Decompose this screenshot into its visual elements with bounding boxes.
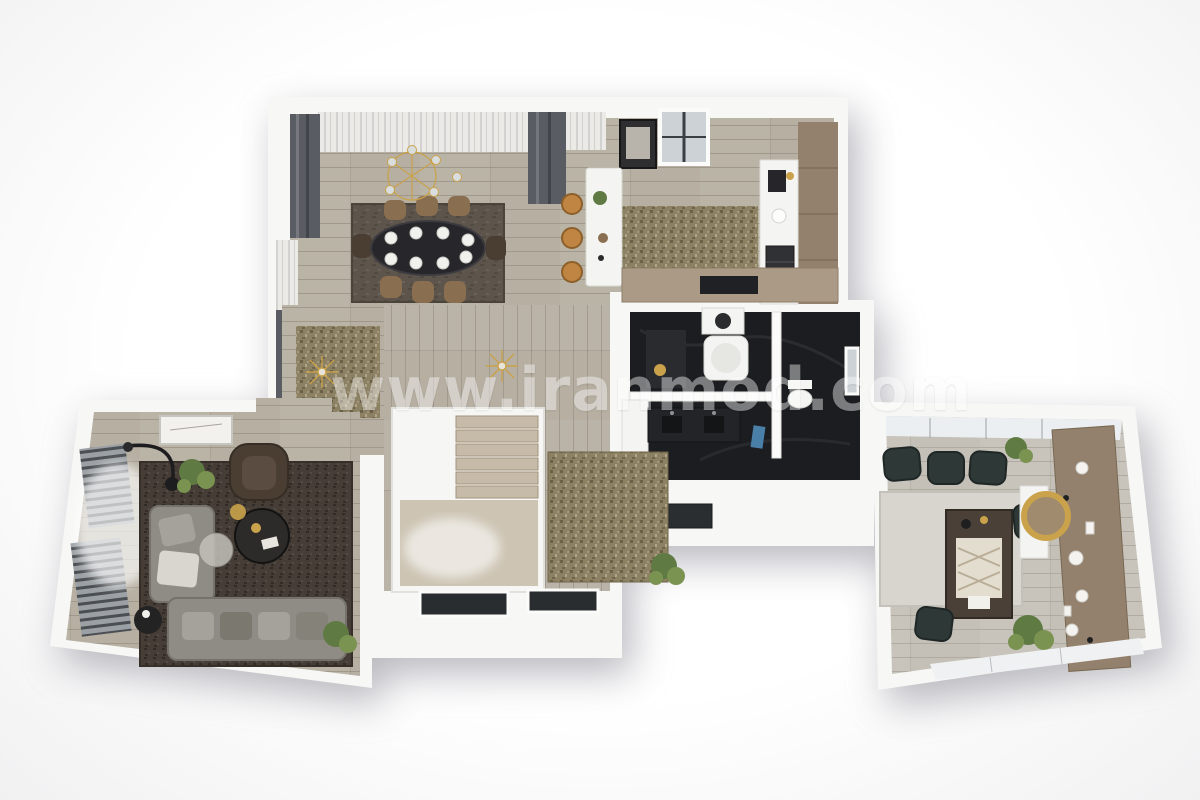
room-family <box>880 416 1146 680</box>
coffee-machine <box>768 170 786 192</box>
dining-chair <box>486 236 506 260</box>
bathroom-inner-wall <box>772 312 781 458</box>
sofa-cushion <box>156 550 199 588</box>
bottom-window <box>420 592 508 616</box>
dining-chair <box>380 276 402 298</box>
drape-pleat <box>306 114 309 238</box>
toilet <box>788 390 812 408</box>
armchair-seat <box>242 456 276 490</box>
armchair-teal <box>928 452 964 484</box>
display-plate <box>1069 551 1083 565</box>
sofa-cushion <box>182 612 214 640</box>
vase-flowers <box>142 610 150 618</box>
bathtub-basin <box>711 343 741 373</box>
dining-chair <box>412 281 434 303</box>
display-plate <box>1076 590 1088 602</box>
dining-chair <box>448 196 470 216</box>
curtain-drape <box>290 114 320 238</box>
sink <box>704 416 724 433</box>
curtain-sheer <box>564 112 606 150</box>
faucet <box>670 411 674 415</box>
accent-table <box>230 504 246 520</box>
dinner-plate <box>460 251 472 263</box>
display-plate <box>1076 462 1088 474</box>
floorplan-canvas <box>0 0 1200 800</box>
sofa-cushion <box>258 612 290 640</box>
table-lamp <box>251 523 261 533</box>
bath-stool <box>654 364 666 376</box>
bathroom-inner-wall <box>630 392 780 401</box>
hallway-rug <box>548 452 668 582</box>
wall-art-print <box>626 127 650 159</box>
pendant-light <box>306 356 338 388</box>
sink <box>662 416 682 433</box>
kitchen-rug <box>622 206 758 268</box>
stair-tread <box>456 458 538 470</box>
floorplan-stage: www.iranmod.com <box>0 0 1200 800</box>
bar-stool <box>562 228 582 248</box>
side-table-glass <box>199 533 233 567</box>
toilet-tank <box>788 380 812 389</box>
dining-chair <box>384 200 406 220</box>
kitchen-island <box>586 168 622 286</box>
curtain-sheer <box>318 112 530 152</box>
bathroom-window <box>846 348 858 394</box>
dining-chair <box>352 234 372 258</box>
display-vase <box>1086 522 1094 534</box>
dining-table <box>371 221 485 275</box>
dinner-plate <box>385 232 397 244</box>
washer-door <box>715 313 731 329</box>
display-vase <box>1064 606 1071 616</box>
bottom-window <box>528 590 598 612</box>
curtain-drape <box>528 112 566 204</box>
daylight-glow <box>404 518 500 578</box>
faucet <box>712 411 716 415</box>
bar-stool <box>562 262 582 282</box>
dinner-plate <box>437 257 449 269</box>
island-decor <box>598 233 608 243</box>
bar-stool <box>562 194 582 214</box>
dining-chair <box>444 281 466 303</box>
dinner-plate <box>462 234 474 246</box>
room-living-lounge <box>66 398 360 676</box>
drape-pleat <box>536 112 539 204</box>
drape-pleat <box>548 112 551 204</box>
sofa-cushion <box>220 612 252 640</box>
armchair-teal <box>969 451 1007 485</box>
table-decor <box>980 516 988 524</box>
table-runner <box>956 538 1002 598</box>
table-decor <box>961 519 971 529</box>
stair-tread <box>456 472 538 484</box>
dinner-plate <box>410 227 422 239</box>
dinner-plate <box>410 257 422 269</box>
living-entry-strip <box>256 398 332 446</box>
stair-tread <box>456 486 538 498</box>
table-decor-box <box>968 596 990 609</box>
cooktop <box>700 276 758 294</box>
island-decor <box>598 255 604 261</box>
side-chair-teal <box>914 606 954 642</box>
stair-tread <box>456 444 538 456</box>
display-bottle <box>1087 637 1093 643</box>
stair-tread <box>456 430 538 442</box>
counter-jar <box>786 172 794 180</box>
counter-vase <box>772 209 786 223</box>
island-plant <box>593 191 607 205</box>
stair-tread <box>456 416 538 428</box>
dinner-plate <box>437 227 449 239</box>
vanity-counter <box>648 408 740 442</box>
side-table-black <box>134 606 162 634</box>
bath-counter <box>646 330 686 388</box>
pendant-light <box>486 350 518 382</box>
drape-pleat <box>296 114 299 238</box>
dinner-plate <box>385 253 397 265</box>
round-mirror-gold <box>1024 494 1068 538</box>
display-plate <box>1066 624 1078 636</box>
armchair-teal <box>883 446 922 481</box>
